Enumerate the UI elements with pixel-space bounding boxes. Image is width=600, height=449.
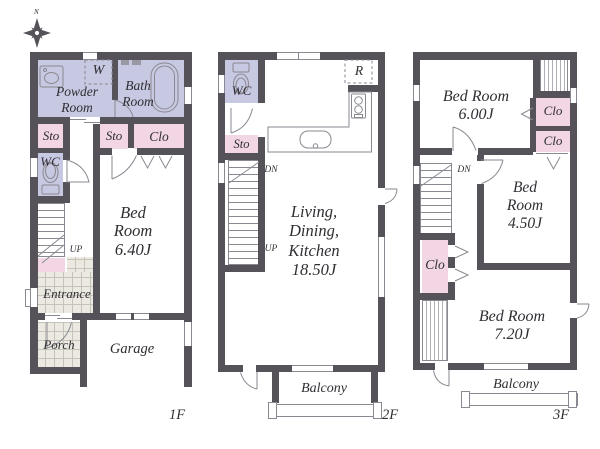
window bbox=[83, 52, 97, 60]
porch-doorway bbox=[45, 313, 72, 320]
window bbox=[378, 237, 385, 297]
room-label-entrance: Entrance bbox=[40, 287, 94, 302]
window bbox=[292, 365, 333, 372]
entry-door bbox=[30, 288, 38, 307]
balcony-post bbox=[568, 391, 577, 408]
wall bbox=[80, 320, 87, 387]
room-label-ldk: Living, Dining, Kitchen 18.50J bbox=[275, 202, 353, 279]
balcony-door-opening bbox=[435, 363, 448, 370]
up-label: UP bbox=[66, 245, 86, 256]
room-label-clo2-3f: Clo bbox=[536, 134, 570, 149]
powder-sliding-door bbox=[70, 117, 100, 124]
wall bbox=[258, 59, 265, 103]
wall bbox=[477, 155, 484, 161]
balcony-post bbox=[268, 402, 277, 419]
bedroom1-3f-name: Bed Room bbox=[430, 88, 522, 106]
garage-opening bbox=[184, 322, 192, 346]
floor-label-3f: 3F bbox=[548, 407, 574, 424]
refrigerator-label: R bbox=[348, 63, 370, 79]
stairs-2f bbox=[228, 160, 260, 265]
stairs-1f bbox=[37, 203, 65, 257]
wall bbox=[218, 52, 225, 372]
balcony-door-opening bbox=[243, 365, 256, 372]
bedroom-1f-size: 6.40J bbox=[103, 241, 163, 259]
wall bbox=[225, 265, 265, 272]
wall bbox=[420, 293, 455, 300]
room-label-bedroom1-3f: Bed Room 6.00J bbox=[430, 88, 522, 125]
room-label-bedroom2-3f: Bed Room 4.50J bbox=[496, 179, 554, 233]
wall bbox=[30, 52, 38, 374]
wall bbox=[37, 148, 70, 153]
wall bbox=[30, 367, 83, 374]
balcony-rail-2f bbox=[270, 404, 380, 417]
wall bbox=[37, 117, 185, 124]
window bbox=[413, 166, 420, 184]
ldk-size: 18.50J bbox=[275, 260, 353, 279]
room-label-sto: Sto bbox=[37, 129, 65, 144]
balcony-wall bbox=[371, 372, 378, 403]
room-label-powder: Powder Room bbox=[42, 84, 112, 115]
wall bbox=[413, 52, 577, 60]
room-label-sto-2f: Sto bbox=[225, 137, 258, 151]
room-label-bedroom3-3f: Bed Room 7.20J bbox=[460, 308, 564, 345]
ldk-name: Living, Dining, Kitchen bbox=[275, 202, 353, 260]
bedroom-1f-name: Bed Room bbox=[103, 204, 163, 241]
window bbox=[218, 163, 225, 183]
room-label-wc: WC bbox=[37, 155, 63, 170]
balcony-label-3f: Balcony bbox=[482, 377, 550, 393]
room-label-washer: W bbox=[85, 63, 112, 79]
wall bbox=[478, 148, 533, 155]
room-label-sto: Sto bbox=[100, 129, 128, 144]
floor-label-1f: 1F bbox=[164, 407, 190, 424]
floor-plan: N bbox=[0, 0, 600, 449]
bedroom3-3f-size: 7.20J bbox=[460, 326, 564, 344]
window bbox=[184, 87, 192, 104]
wall bbox=[37, 196, 70, 203]
wall bbox=[530, 126, 577, 131]
wall bbox=[137, 148, 184, 155]
window bbox=[413, 85, 420, 101]
window bbox=[116, 313, 131, 320]
wall bbox=[420, 148, 452, 155]
room-label-porch: Porch bbox=[38, 338, 80, 353]
room-label-garage: Garage bbox=[103, 341, 161, 358]
door-opening bbox=[570, 303, 577, 318]
bedroom2-3f-size: 4.50J bbox=[496, 215, 554, 233]
bedroom1-3f-size: 6.00J bbox=[430, 106, 522, 124]
balcony-label-2f: Balcony bbox=[290, 381, 358, 397]
room-label-clo: Clo bbox=[134, 129, 184, 145]
wall bbox=[348, 85, 378, 92]
door-opening bbox=[378, 188, 385, 205]
wall bbox=[93, 117, 100, 313]
window bbox=[277, 52, 320, 60]
sink-icon bbox=[300, 131, 331, 148]
room-label-bath: Bath Room bbox=[112, 78, 164, 109]
kitchen-counter-icon bbox=[268, 92, 372, 152]
room-label-wc-2f: WC bbox=[225, 84, 258, 99]
balcony-rail-3f bbox=[463, 393, 578, 406]
dn-label: DN bbox=[454, 165, 474, 176]
wall bbox=[225, 153, 265, 160]
stairs-3f bbox=[420, 163, 452, 235]
window bbox=[484, 363, 528, 370]
window bbox=[134, 313, 149, 320]
bedroom2-3f-name: Bed Room bbox=[496, 179, 554, 215]
wall bbox=[100, 148, 112, 155]
balcony-post bbox=[461, 391, 470, 408]
floor-label-2f: 2F bbox=[377, 407, 403, 424]
entrance-step bbox=[37, 258, 65, 272]
hatch-area-top bbox=[540, 59, 568, 92]
stove-icon bbox=[352, 94, 366, 118]
wall bbox=[477, 263, 577, 270]
hatch-area-left bbox=[422, 300, 448, 361]
balcony-wall bbox=[272, 372, 279, 403]
wall bbox=[378, 52, 385, 372]
window bbox=[570, 88, 577, 103]
wall bbox=[30, 52, 192, 60]
room-label-clo1-3f: Clo bbox=[536, 104, 570, 119]
wall bbox=[448, 233, 455, 245]
wall bbox=[477, 184, 484, 270]
window bbox=[218, 75, 225, 93]
dn-label: DN bbox=[261, 165, 281, 176]
bedroom3-3f-name: Bed Room bbox=[460, 308, 564, 326]
room-label-clo3-3f: Clo bbox=[420, 257, 450, 273]
compass-rose: N bbox=[23, 8, 51, 48]
north-label: N bbox=[33, 8, 39, 16]
room-label-bedroom-1f: Bed Room 6.40J bbox=[103, 204, 163, 259]
